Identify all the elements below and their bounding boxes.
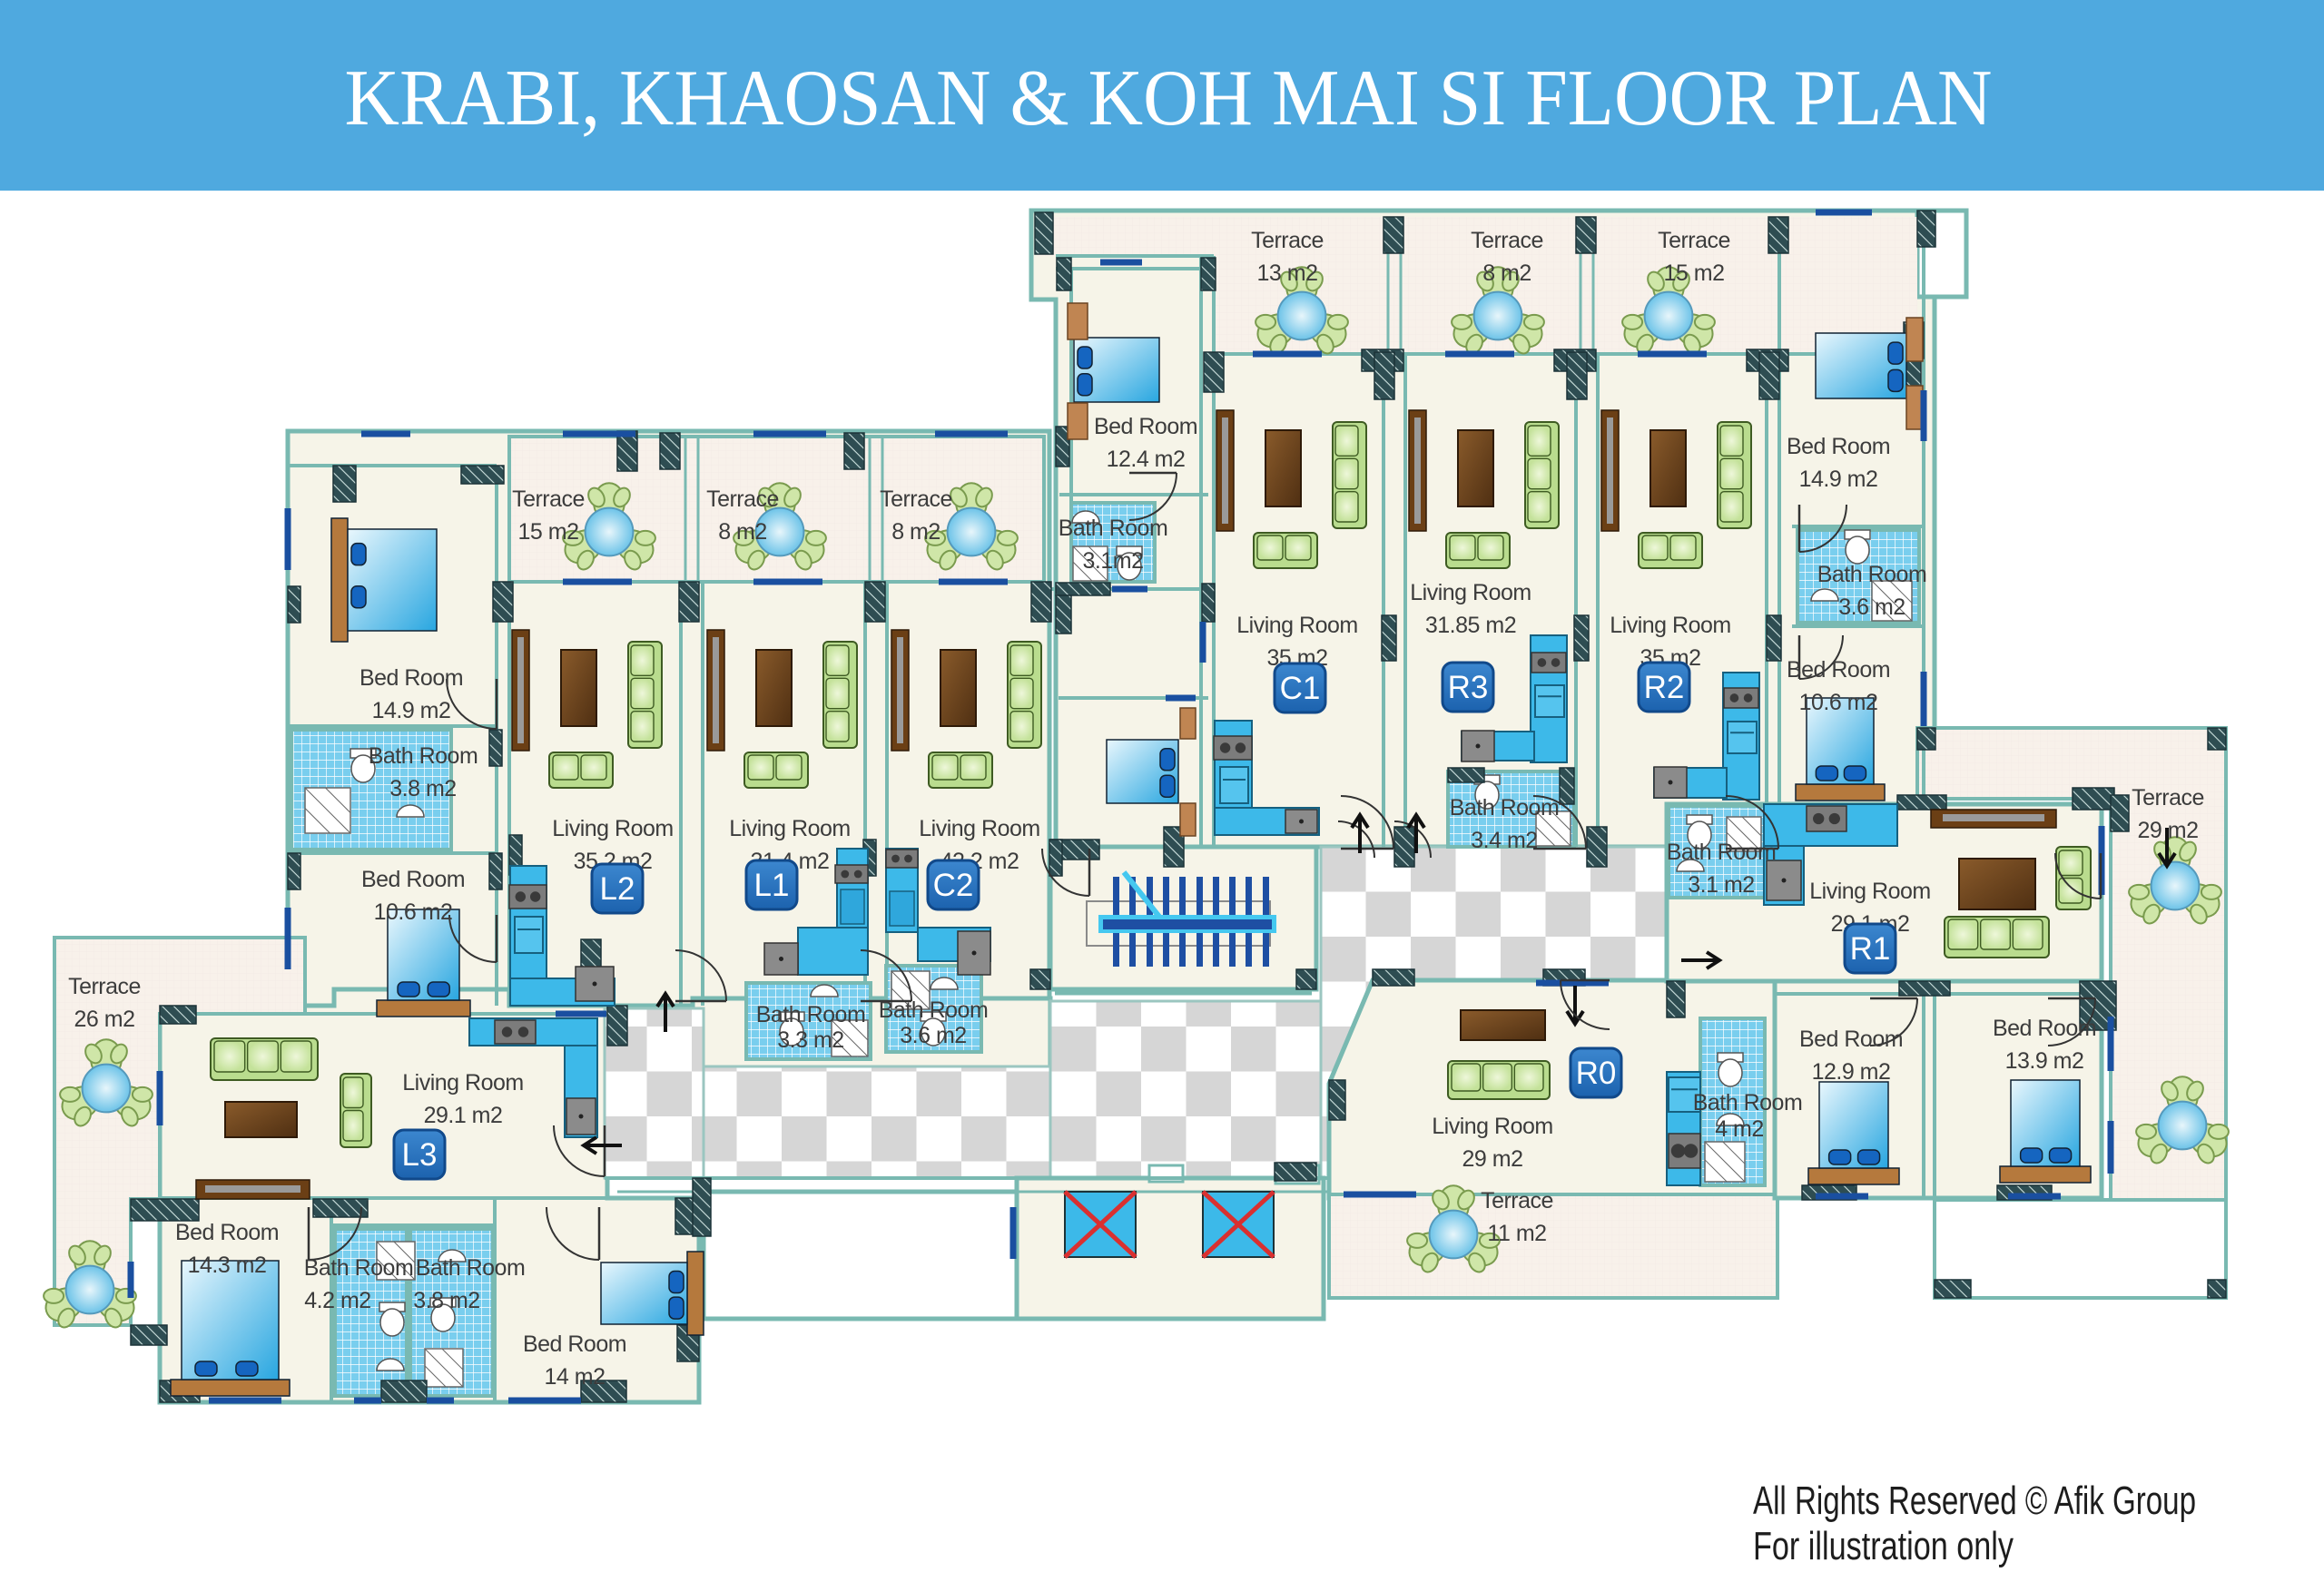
svg-text:29.1 m2: 29.1 m2 — [424, 1103, 503, 1128]
svg-text:Bed Room: Bed Room — [359, 665, 463, 691]
svg-text:Terrace: Terrace — [706, 486, 779, 512]
svg-text:3.6 m2: 3.6 m2 — [1838, 594, 1905, 620]
svg-text:14.9 m2: 14.9 m2 — [1799, 467, 1878, 492]
svg-text:Bath Room: Bath Room — [1667, 840, 1777, 865]
svg-text:3.1m2: 3.1m2 — [1083, 548, 1144, 574]
svg-text:Bed Room: Bed Room — [1787, 657, 1890, 683]
svg-text:Bath Room: Bath Room — [1450, 795, 1560, 820]
svg-text:R2: R2 — [1644, 670, 1685, 705]
svg-text:Terrace: Terrace — [1481, 1188, 1553, 1213]
svg-text:14.3 m2: 14.3 m2 — [188, 1253, 267, 1278]
svg-text:10.6 m2: 10.6 m2 — [374, 899, 453, 925]
svg-text:29 m2: 29 m2 — [2138, 818, 2199, 843]
svg-text:For illustration only: For illustration only — [1753, 1524, 2014, 1567]
svg-text:3.4 m2: 3.4 m2 — [1471, 828, 1537, 853]
svg-text:12.4 m2: 12.4 m2 — [1107, 447, 1186, 472]
svg-text:Bath Room: Bath Room — [369, 743, 478, 769]
svg-text:L2: L2 — [600, 871, 635, 907]
svg-text:Bed Room: Bed Room — [175, 1220, 279, 1245]
svg-text:15 m2: 15 m2 — [1664, 260, 1725, 286]
svg-text:Terrace: Terrace — [1471, 228, 1543, 253]
svg-text:R3: R3 — [1448, 670, 1489, 705]
svg-text:13.9 m2: 13.9 m2 — [2005, 1048, 2084, 1074]
svg-text:Terrace: Terrace — [512, 486, 585, 512]
svg-text:31.85 m2: 31.85 m2 — [1425, 613, 1516, 638]
svg-text:Living Room: Living Room — [1236, 613, 1357, 638]
svg-text:Terrace: Terrace — [1251, 228, 1324, 253]
svg-text:Living Room: Living Room — [919, 816, 1039, 841]
svg-text:13 m2: 13 m2 — [1257, 260, 1318, 286]
svg-text:10.6 m2: 10.6 m2 — [1799, 690, 1878, 715]
svg-text:Bath Room: Bath Room — [1693, 1090, 1803, 1115]
svg-text:Bed Room: Bed Room — [523, 1331, 626, 1357]
svg-text:R0: R0 — [1576, 1056, 1617, 1091]
svg-text:R1: R1 — [1850, 931, 1891, 967]
svg-text:KRABI, KHAOSAN & KOH MAI SI FL: KRABI, KHAOSAN & KOH MAI SI FLOOR PLAN — [345, 54, 1993, 142]
svg-text:3.8 m2: 3.8 m2 — [413, 1288, 479, 1313]
svg-text:Bed Room: Bed Room — [1993, 1016, 2096, 1041]
svg-text:3.6 m2: 3.6 m2 — [900, 1023, 966, 1048]
svg-text:3.8 m2: 3.8 m2 — [389, 776, 456, 801]
svg-text:Living Room: Living Room — [552, 816, 673, 841]
svg-text:Living Room: Living Room — [402, 1070, 523, 1095]
svg-text:14 m2: 14 m2 — [545, 1364, 606, 1390]
svg-text:Terrace: Terrace — [2132, 785, 2204, 811]
svg-text:All Rights Reserved © Afik Gro: All Rights Reserved © Afik Group — [1753, 1479, 2196, 1523]
svg-text:15 m2: 15 m2 — [518, 519, 579, 545]
svg-text:C2: C2 — [933, 868, 974, 903]
svg-text:12.9 m2: 12.9 m2 — [1812, 1059, 1891, 1085]
svg-text:26 m2: 26 m2 — [74, 1007, 135, 1032]
svg-text:3.1 m2: 3.1 m2 — [1688, 872, 1754, 898]
svg-text:4.2 m2: 4.2 m2 — [304, 1288, 370, 1313]
svg-text:Living Room: Living Room — [1432, 1114, 1552, 1139]
svg-text:Living Room: Living Room — [1610, 613, 1730, 638]
svg-text:Bath Room: Bath Room — [1059, 516, 1168, 541]
svg-text:L3: L3 — [402, 1137, 438, 1173]
svg-text:Terrace: Terrace — [1658, 228, 1730, 253]
svg-text:Bath Room: Bath Room — [304, 1255, 414, 1281]
svg-text:Terrace: Terrace — [68, 974, 141, 999]
svg-text:8 m2: 8 m2 — [718, 519, 767, 545]
svg-text:Bed Room: Bed Room — [1094, 414, 1197, 439]
svg-text:Bed Room: Bed Room — [361, 867, 465, 892]
svg-text:Living Room: Living Room — [729, 816, 850, 841]
svg-text:8 m2: 8 m2 — [891, 519, 940, 545]
svg-text:8 m2: 8 m2 — [1482, 260, 1531, 286]
svg-text:Bath Room: Bath Room — [756, 1002, 866, 1027]
svg-text:14.9 m2: 14.9 m2 — [372, 698, 451, 723]
svg-text:Bath Room: Bath Room — [879, 997, 989, 1023]
svg-text:Bed Room: Bed Room — [1799, 1027, 1903, 1052]
svg-text:3.3 m2: 3.3 m2 — [777, 1027, 843, 1053]
svg-text:Bed Room: Bed Room — [1787, 434, 1890, 459]
svg-text:Living Room: Living Room — [1809, 879, 1930, 904]
svg-text:Bath Room: Bath Room — [1817, 562, 1927, 587]
svg-text:Bath Room: Bath Room — [416, 1255, 526, 1281]
svg-text:4 m2: 4 m2 — [1715, 1116, 1764, 1142]
svg-text:29 m2: 29 m2 — [1462, 1146, 1523, 1172]
svg-text:C1: C1 — [1280, 671, 1321, 706]
svg-text:Living Room: Living Room — [1410, 580, 1531, 605]
svg-text:11 m2: 11 m2 — [1487, 1221, 1546, 1246]
svg-text:L1: L1 — [754, 868, 790, 903]
svg-text:Terrace: Terrace — [880, 486, 952, 512]
